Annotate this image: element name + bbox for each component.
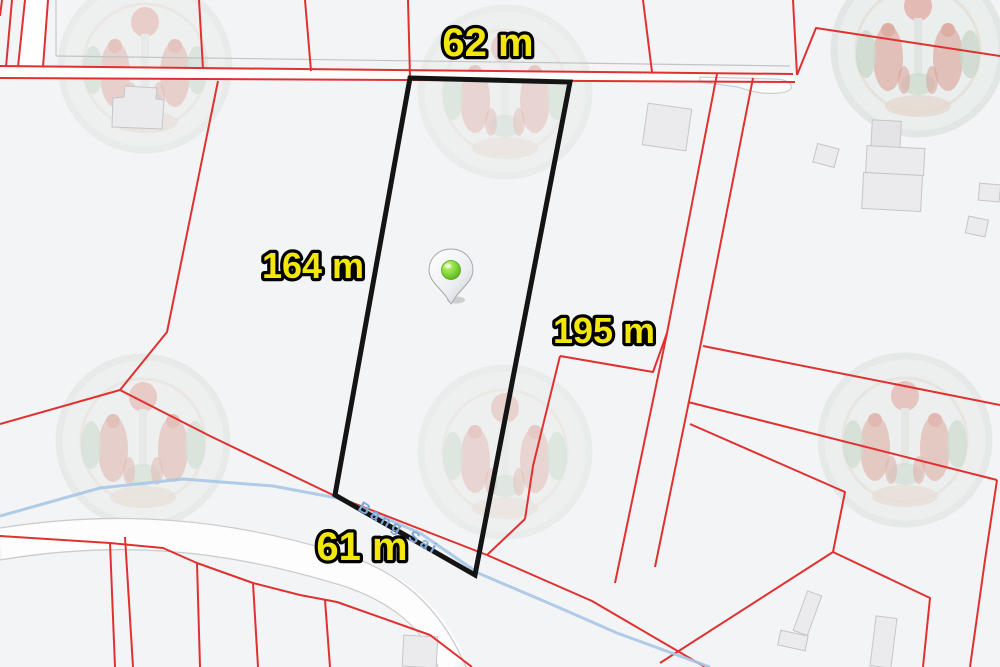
pin-dot	[442, 261, 461, 280]
building-footprint	[871, 120, 901, 147]
measurement-label-right: 195 m	[553, 310, 655, 351]
measurement-label-left: 164 m	[262, 245, 364, 286]
pin-dot-highlight	[445, 264, 452, 269]
building-footprint	[965, 216, 988, 237]
building-footprint	[866, 146, 925, 176]
map-viewport: Bang Sai 62 m 164 m 195 m 61 m	[0, 0, 1000, 667]
map-canvas[interactable]: Bang Sai 62 m 164 m 195 m 61 m	[0, 0, 1000, 667]
building-footprint	[642, 103, 691, 151]
building-footprint	[978, 183, 1000, 202]
measurement-label-bottom: 61 m	[316, 525, 407, 569]
measurement-label-top: 62 m	[442, 21, 533, 65]
building-footprint	[402, 635, 438, 667]
building-footprint	[862, 172, 923, 211]
